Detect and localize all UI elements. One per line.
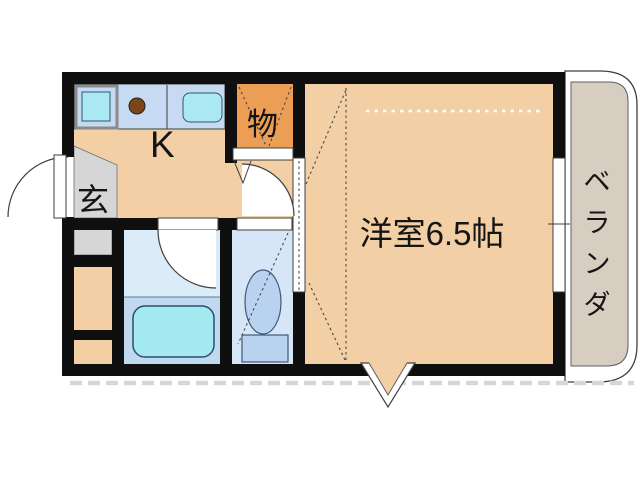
wall-top xyxy=(62,72,565,84)
wall-genkan-bottom xyxy=(74,255,124,267)
wall-right-lower xyxy=(553,292,565,376)
wall-sanitary-top-mid xyxy=(218,218,237,230)
wall-bathroom-left xyxy=(112,218,124,364)
wall-left-upper xyxy=(62,72,74,157)
kitchen-sink-icon xyxy=(183,93,222,122)
bathroom-door-strip xyxy=(158,218,218,230)
entrance-shoe-cabinet xyxy=(74,228,112,255)
washing-machine-pan xyxy=(82,92,110,121)
veranda-label: ベランダ xyxy=(581,162,613,326)
wall-bathroom-toilet xyxy=(220,230,232,364)
toilet-icon xyxy=(245,270,281,334)
bathtub-icon xyxy=(133,306,214,357)
toilet-tank xyxy=(242,335,288,362)
wall-right-upper xyxy=(553,72,565,158)
closet-door-strip xyxy=(233,148,293,160)
wall-left-lower xyxy=(62,217,74,376)
wall-bottom xyxy=(62,364,565,376)
sliding-window xyxy=(553,158,565,292)
main-room-label: 洋室6.5帖 xyxy=(346,207,518,255)
floor-plan: K 玄 物 洋室6.5帖 ベランダ xyxy=(0,0,640,480)
kitchen-label: K xyxy=(150,124,175,166)
floor-plan-svg xyxy=(0,0,640,480)
wall-mainroom-left-lower xyxy=(293,292,305,364)
stove-burner-icon xyxy=(129,98,145,114)
wall-compartment-divider xyxy=(74,330,112,340)
storage-label: 物 xyxy=(247,99,278,144)
wall-closet-right xyxy=(293,84,305,160)
toilet-door-strip xyxy=(237,218,292,230)
entrance-door-leaf xyxy=(54,155,66,218)
entrance-label: 玄 xyxy=(77,175,109,221)
